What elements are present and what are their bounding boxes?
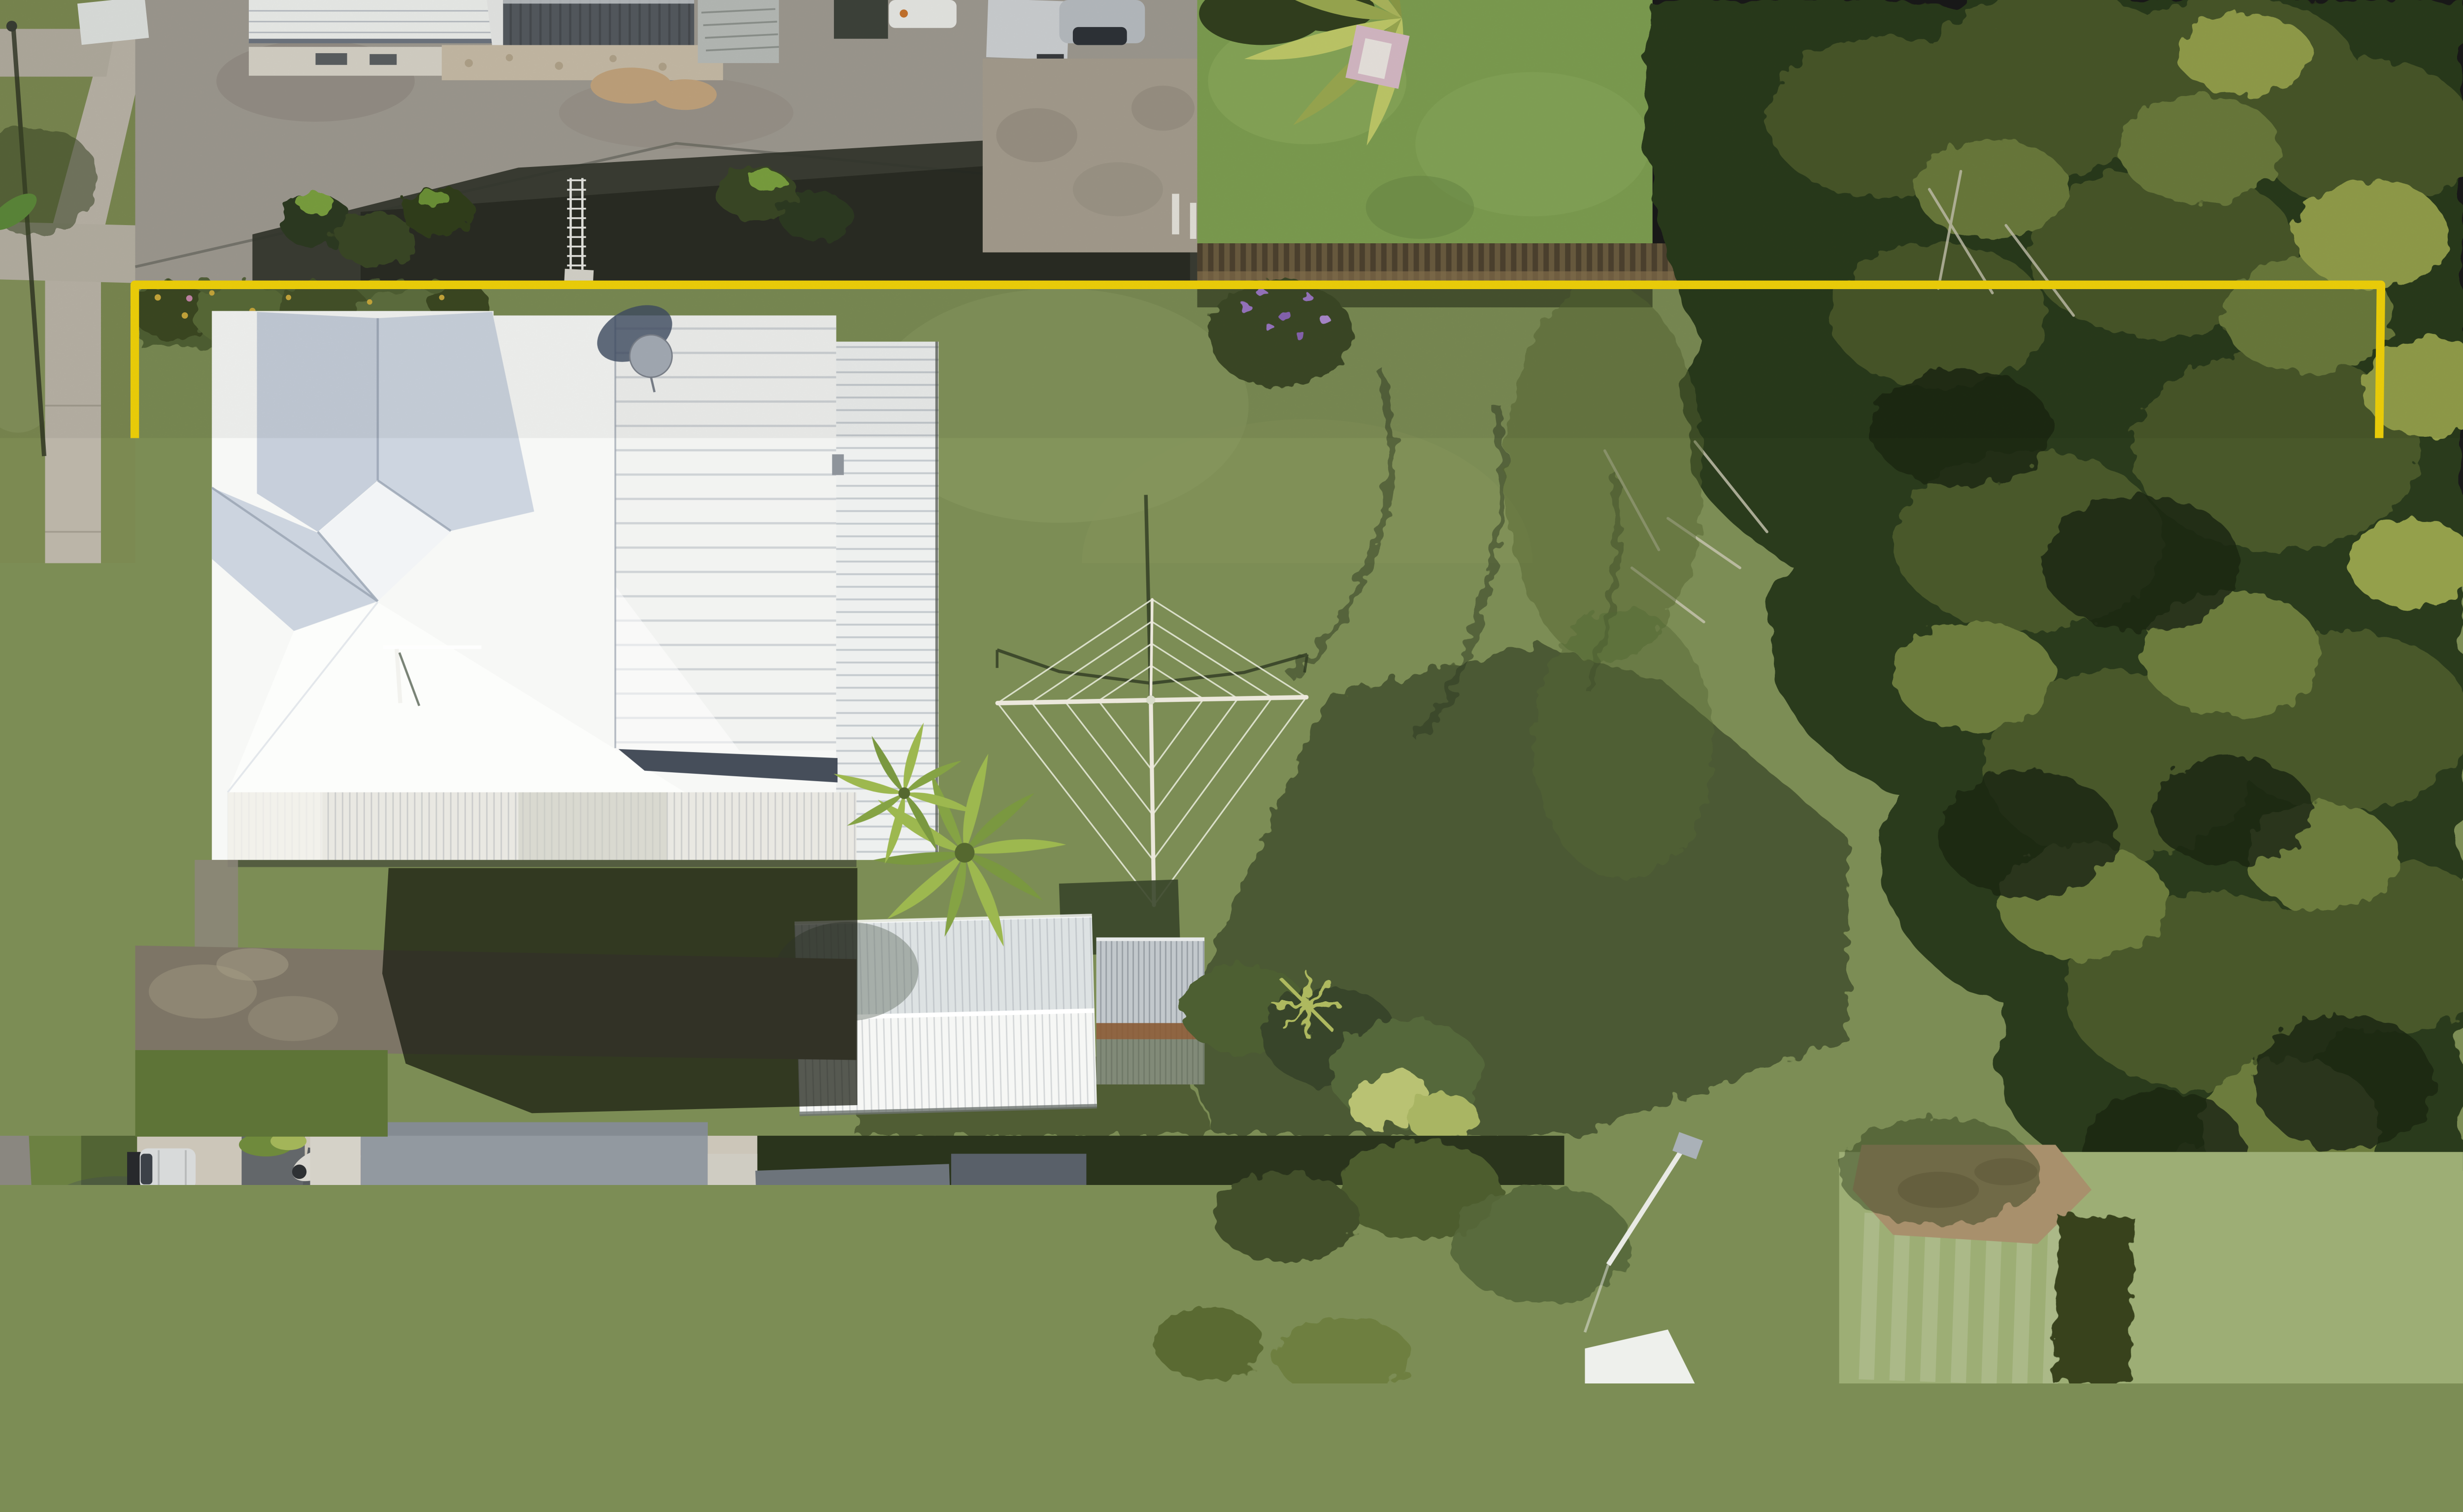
photo-grain-overlay bbox=[0, 0, 2463, 1383]
aerial-photo-canvas bbox=[0, 0, 2463, 1383]
aerial-property-photo bbox=[0, 0, 2463, 1383]
